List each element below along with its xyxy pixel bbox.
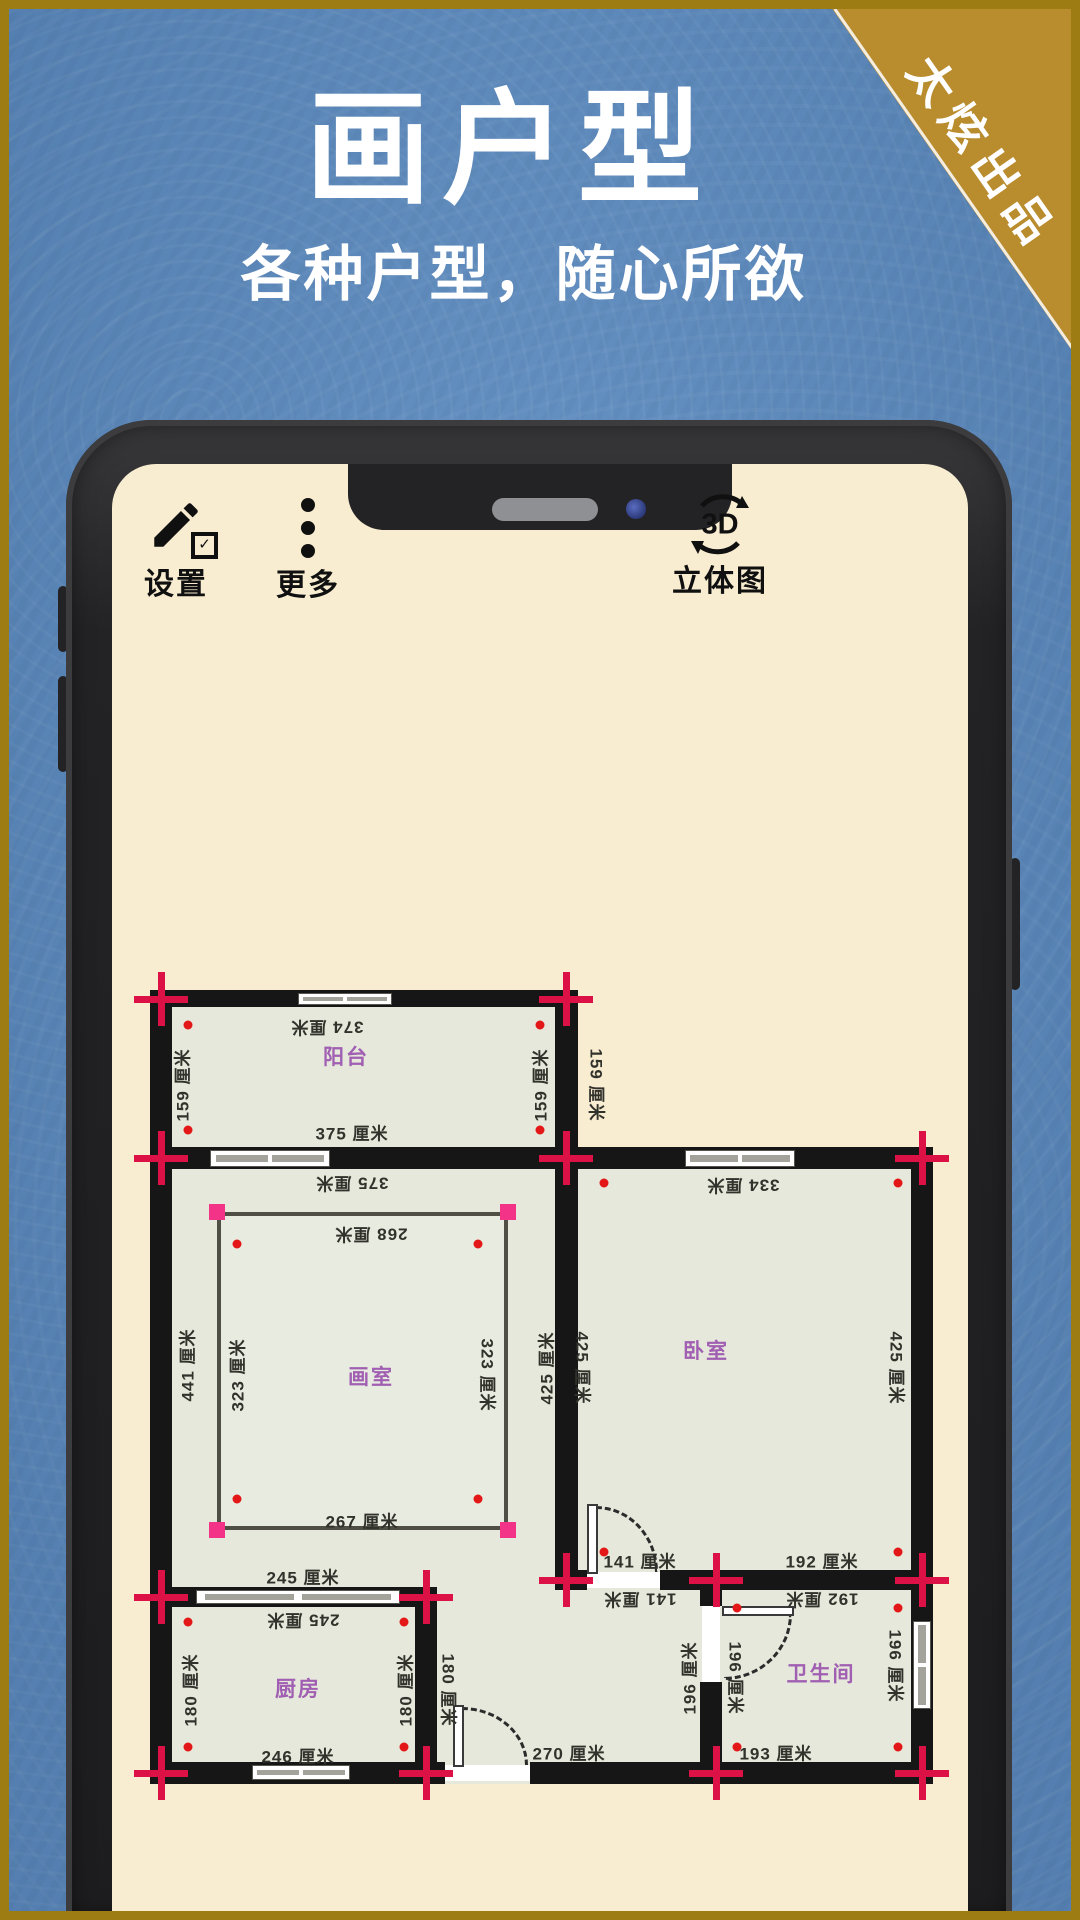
corner-dot (233, 1240, 242, 1249)
dimension-label: 192 厘米 (785, 1589, 858, 1614)
corner-dot (536, 1126, 545, 1135)
dimension-label: 196 厘米 (725, 1641, 750, 1714)
window-kitchen-top[interactable] (196, 1590, 400, 1604)
room-label[interactable]: 卫生间 (787, 1658, 856, 1688)
check-icon: ✓ (191, 532, 218, 559)
dimension-label: 334 厘米 (706, 1175, 779, 1200)
corner-dot (600, 1179, 609, 1188)
speaker-grille (492, 498, 598, 521)
view-3d-button[interactable]: 3D 立体图 (672, 494, 768, 600)
dimension-label: 374 厘米 (290, 1017, 363, 1042)
doorway-bathroom (702, 1606, 720, 1682)
dimension-label: 193 厘米 (739, 1740, 812, 1765)
wall-corner-handle[interactable] (689, 1553, 743, 1607)
corner-dot (733, 1604, 742, 1613)
corner-dot (184, 1743, 193, 1752)
wall-corner-handle[interactable] (134, 1570, 188, 1624)
dimension-label: 180 厘米 (177, 1653, 202, 1726)
wall-corner-handle[interactable] (134, 1131, 188, 1185)
room-corner-handle[interactable] (500, 1522, 516, 1538)
corner-dot (184, 1618, 193, 1627)
window-bedroom-top[interactable] (685, 1150, 795, 1167)
corner-dot (894, 1548, 903, 1557)
dimension-label: 245 厘米 (266, 1610, 339, 1635)
corner-dot (894, 1743, 903, 1752)
dimension-label: 441 厘米 (174, 1328, 199, 1401)
wall-corner-handle[interactable] (895, 1746, 949, 1800)
dimension-label: 425 厘米 (572, 1331, 597, 1404)
corner-dot (894, 1179, 903, 1188)
window-bathroom-right[interactable] (913, 1621, 931, 1709)
corner-dot (184, 1021, 193, 1030)
dimension-label: 196 厘米 (676, 1641, 701, 1714)
page-subtitle: 各种户型，随心所欲 (0, 226, 1064, 313)
doorway-entrance (445, 1765, 530, 1781)
room-label[interactable]: 卧室 (683, 1335, 729, 1365)
wall-corner-handle[interactable] (399, 1570, 453, 1624)
dimension-label: 375 厘米 (315, 1120, 388, 1145)
dimension-label: 196 厘米 (885, 1629, 910, 1702)
pencil-icon: ✓ (147, 496, 205, 559)
dimension-label: 159 厘米 (169, 1048, 194, 1121)
rotate-3d-icon: 3D (687, 494, 753, 556)
wall-corner-handle[interactable] (134, 972, 188, 1026)
dimension-label: 323 厘米 (224, 1338, 249, 1411)
room-label[interactable]: 画室 (348, 1361, 394, 1391)
wall-corner-handle[interactable] (134, 1746, 188, 1800)
dimension-label: 141 厘米 (603, 1589, 676, 1614)
settings-label: 设置 (136, 559, 216, 603)
corner-dot (400, 1743, 409, 1752)
room-corner-handle[interactable] (209, 1522, 225, 1538)
promo-banner: 画户型 各种户型，随心所欲 太炫出品 ✓ 设置 更多 3D (0, 0, 1080, 1920)
corner-dot (474, 1240, 483, 1249)
room-corner-handle[interactable] (500, 1204, 516, 1220)
dimension-label: 180 厘米 (438, 1653, 463, 1726)
wall-corner-handle[interactable] (539, 1131, 593, 1185)
window-balcony-top[interactable] (298, 993, 392, 1005)
wall-corner-handle[interactable] (689, 1746, 743, 1800)
dimension-label: 267 厘米 (325, 1508, 398, 1533)
dimension-label: 375 厘米 (315, 1173, 388, 1198)
front-camera (626, 499, 646, 519)
dimension-label: 323 厘米 (477, 1338, 502, 1411)
wall-corner-handle[interactable] (895, 1553, 949, 1607)
corner-dot (474, 1495, 483, 1504)
dimension-label: 425 厘米 (533, 1331, 558, 1404)
corner-dot (400, 1618, 409, 1627)
dimension-label: 192 厘米 (785, 1548, 858, 1573)
doorway-bedroom (587, 1572, 660, 1588)
room-label[interactable]: 厨房 (275, 1673, 321, 1703)
dimension-label: 270 厘米 (532, 1740, 605, 1765)
wall-corner-handle[interactable] (539, 972, 593, 1026)
dimension-label: 268 厘米 (334, 1224, 407, 1249)
dimension-label: 159 厘米 (527, 1048, 552, 1121)
dimension-label: 245 厘米 (266, 1564, 339, 1589)
corner-dot (536, 1021, 545, 1030)
more-dots-icon (293, 498, 323, 560)
dimension-label: 141 厘米 (603, 1548, 676, 1573)
settings-button[interactable]: ✓ 设置 (136, 496, 216, 603)
more-button[interactable]: 更多 (268, 498, 348, 604)
more-label: 更多 (268, 560, 348, 604)
dimension-label: 180 厘米 (392, 1653, 417, 1726)
corner-dot (184, 1126, 193, 1135)
wall-corner-handle[interactable] (399, 1746, 453, 1800)
dimension-label: 425 厘米 (886, 1331, 911, 1404)
corner-dot (233, 1495, 242, 1504)
dimension-label: 246 厘米 (261, 1743, 334, 1768)
wall-corner-handle[interactable] (539, 1553, 593, 1607)
room-label[interactable]: 阳台 (323, 1041, 369, 1071)
dimension-label: 159 厘米 (586, 1048, 611, 1121)
room-corner-handle[interactable] (209, 1204, 225, 1220)
corner-dot (894, 1604, 903, 1613)
window-balcony-bottom[interactable] (210, 1150, 330, 1167)
view-3d-label: 立体图 (672, 556, 768, 600)
threed-icon-text: 3D (701, 509, 738, 542)
wall-corner-handle[interactable] (895, 1131, 949, 1185)
